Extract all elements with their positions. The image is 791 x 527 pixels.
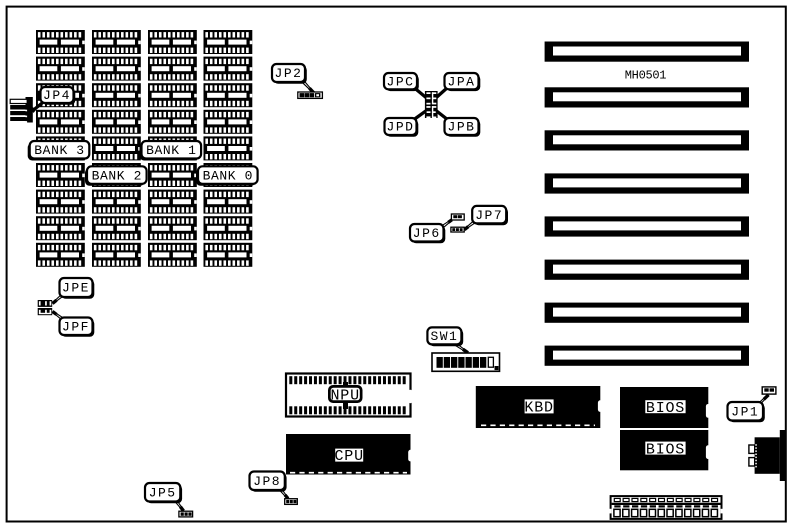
svg-text:CPU: CPU — [334, 448, 363, 465]
svg-text:MH0501: MH0501 — [625, 69, 667, 83]
svg-text:JP2: JP2 — [275, 66, 303, 81]
svg-text:SW1: SW1 — [430, 329, 458, 344]
svg-text:BIOS: BIOS — [646, 441, 685, 458]
svg-text:JP4: JP4 — [43, 88, 71, 103]
svg-text:NPU: NPU — [330, 388, 359, 405]
svg-text:BANK 3: BANK 3 — [34, 143, 84, 158]
svg-text:JP6: JP6 — [413, 226, 441, 241]
svg-text:JPF: JPF — [62, 319, 90, 334]
svg-text:KBD: KBD — [524, 400, 553, 417]
svg-text:BANK 1: BANK 1 — [146, 143, 196, 158]
svg-text:JPA: JPA — [448, 74, 476, 89]
svg-text:BANK 2: BANK 2 — [92, 168, 142, 183]
svg-text:JP1: JP1 — [731, 404, 759, 419]
svg-text:JPD: JPD — [387, 120, 415, 135]
svg-text:JP8: JP8 — [253, 474, 281, 489]
svg-text:JP5: JP5 — [149, 485, 177, 500]
svg-text:JP7: JP7 — [475, 208, 503, 223]
svg-text:JPB: JPB — [448, 120, 476, 135]
svg-text:BANK 0: BANK 0 — [203, 168, 253, 183]
svg-text:JPC: JPC — [387, 74, 415, 89]
svg-text:JPE: JPE — [62, 281, 90, 296]
svg-text:BIOS: BIOS — [646, 400, 685, 417]
